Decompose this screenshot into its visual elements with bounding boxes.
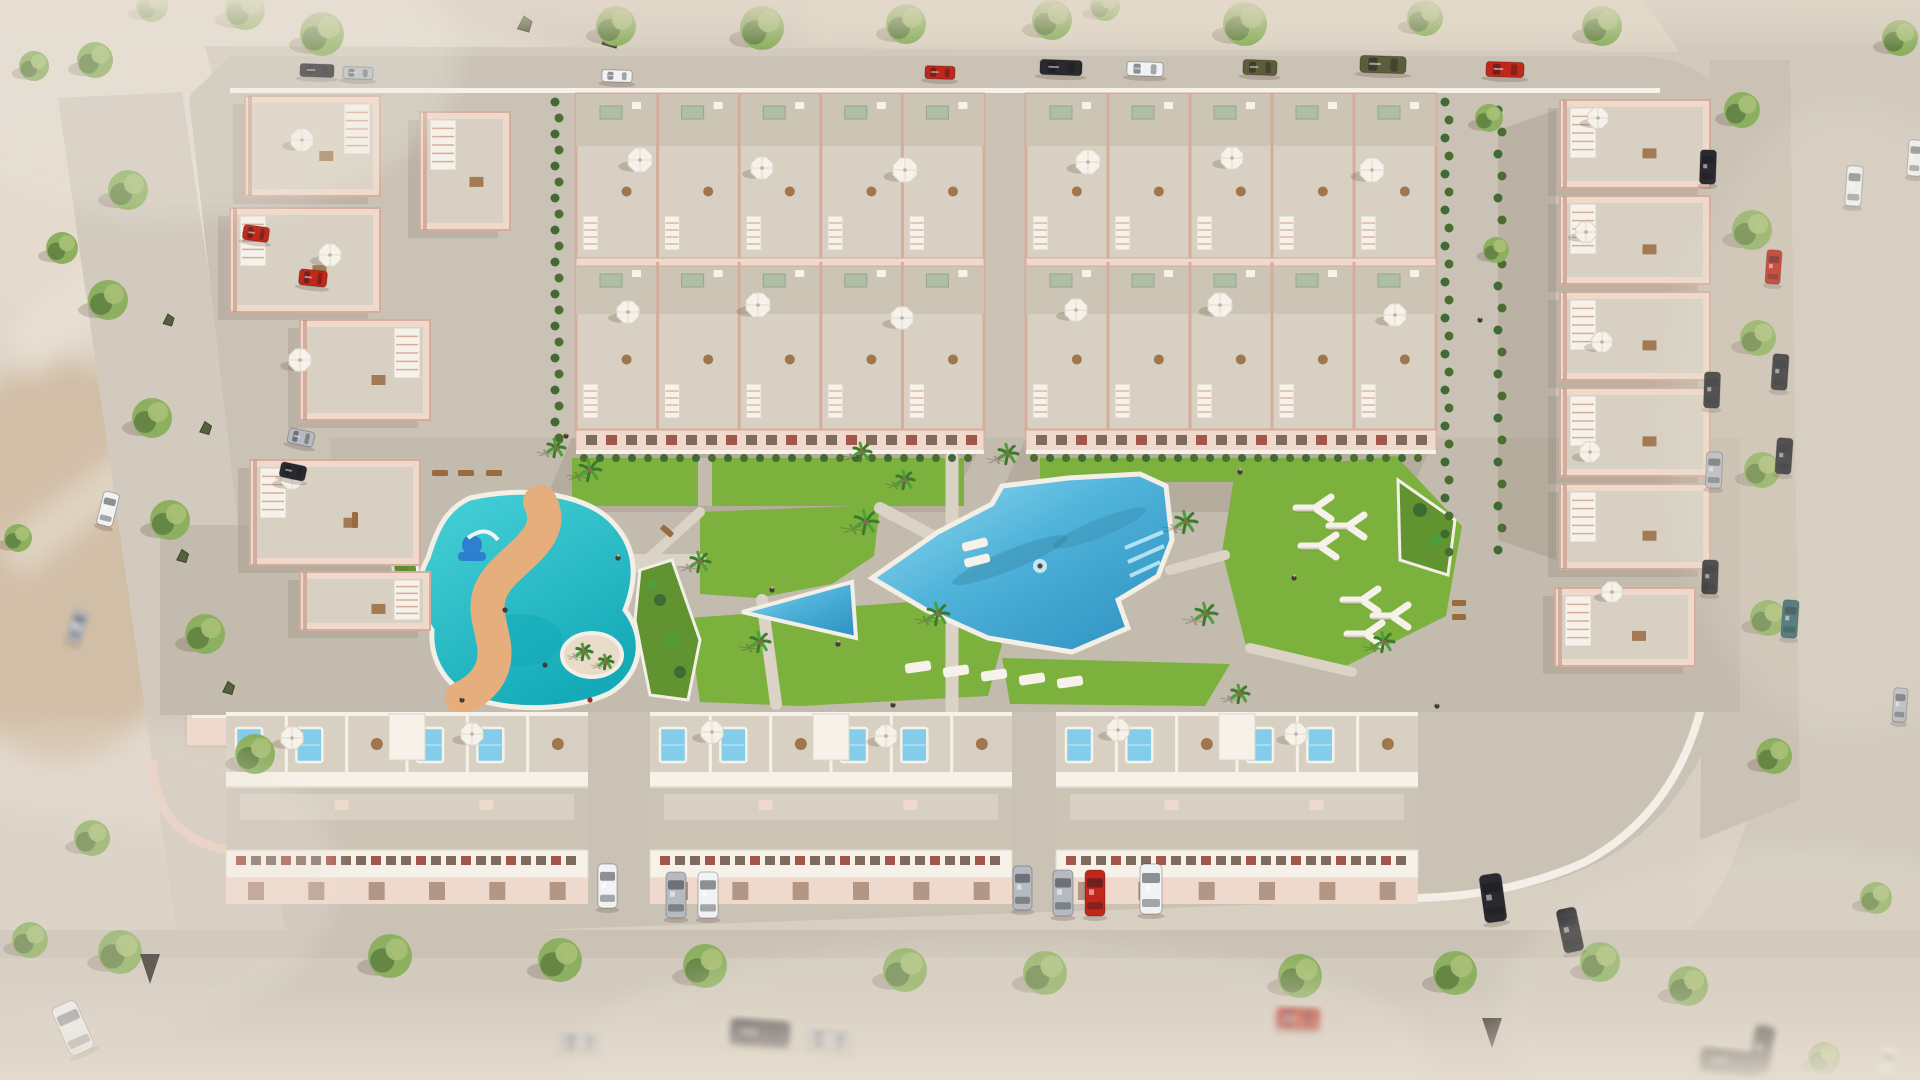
window (1196, 435, 1207, 445)
hedge-bush (660, 454, 668, 462)
solar-panel (1378, 274, 1400, 287)
hedge-bush (708, 454, 716, 462)
stair-railing (1279, 216, 1294, 250)
window (706, 435, 717, 445)
terrace-table (1643, 148, 1657, 158)
bottom-townhouse-rows (226, 712, 1418, 904)
hedge-bush (836, 454, 844, 462)
window (966, 435, 977, 445)
solar-panel (600, 274, 622, 287)
window (356, 856, 366, 865)
hedge-bush (724, 454, 732, 462)
terrace-table (470, 177, 484, 187)
hedge-bush (1350, 454, 1358, 462)
window (735, 856, 745, 865)
window (1296, 435, 1307, 445)
hedge-bush (1414, 454, 1422, 462)
terrace-table (1643, 531, 1657, 541)
development-scene (0, 0, 1920, 1080)
solar-panel (1214, 106, 1236, 119)
window (1056, 435, 1067, 445)
window (945, 856, 955, 865)
villa (238, 460, 420, 573)
solar-panel (1378, 106, 1400, 119)
window (780, 856, 790, 865)
window (926, 435, 937, 445)
terrace-table (1072, 354, 1082, 364)
window (766, 435, 777, 445)
window (586, 435, 597, 445)
window (491, 856, 501, 865)
aerial-render-stage (0, 0, 1920, 1080)
villa (1543, 588, 1695, 674)
solar-panel (763, 274, 785, 287)
stair-tower (389, 714, 425, 760)
hedge-bush (756, 454, 764, 462)
car (1238, 59, 1281, 80)
window (1236, 435, 1247, 445)
hedge-bush (916, 454, 924, 462)
solar-panel (682, 106, 704, 119)
window (1351, 856, 1361, 865)
window (1396, 856, 1406, 865)
solar-panel (1050, 274, 1072, 287)
stair-railing (746, 384, 761, 418)
stair-railing (1197, 216, 1212, 250)
window (341, 856, 351, 865)
stair-railing (1033, 384, 1048, 418)
window (1261, 856, 1271, 865)
window (855, 856, 865, 865)
solar-panel (763, 106, 785, 119)
hedge-bush (692, 454, 700, 462)
hedge-bush (964, 454, 972, 462)
terrace-table (703, 186, 713, 196)
window (746, 435, 757, 445)
window (1231, 856, 1241, 865)
window (846, 435, 857, 445)
bather (587, 697, 592, 702)
car (1137, 864, 1164, 919)
street-facade (576, 430, 984, 452)
stair-railing (1361, 216, 1376, 250)
window (1416, 435, 1427, 445)
window (401, 856, 411, 865)
villa (1548, 196, 1710, 292)
solar-panel (1296, 106, 1318, 119)
stair-railing (1197, 384, 1212, 418)
bench (486, 470, 502, 476)
swimmer (1037, 563, 1042, 568)
door (974, 882, 990, 900)
window (906, 435, 917, 445)
window (446, 856, 456, 865)
window (626, 435, 637, 445)
hedge-bush (1302, 454, 1310, 462)
stair-tower (1219, 714, 1255, 760)
window (476, 856, 486, 865)
hedge-bush (1238, 454, 1246, 462)
stair-railing (1033, 216, 1048, 250)
hedge-bush (1174, 454, 1182, 462)
door (1380, 882, 1396, 900)
window (690, 856, 700, 865)
window (825, 856, 835, 865)
stair-railing (746, 216, 761, 250)
solar-panel (1214, 274, 1236, 287)
hedge-bush (628, 454, 636, 462)
door (1199, 882, 1215, 900)
terrace-table (866, 354, 876, 364)
terrace-table (1318, 186, 1328, 196)
window (1336, 856, 1346, 865)
door (853, 882, 869, 900)
window (1076, 435, 1087, 445)
building-shadow (1498, 110, 1556, 560)
terrace-table (948, 186, 958, 196)
terrace-table (1154, 186, 1164, 196)
door (550, 882, 566, 900)
hedge-bush (676, 454, 684, 462)
window (810, 856, 820, 865)
solar-panel (682, 274, 704, 287)
door (429, 882, 445, 900)
window (551, 856, 561, 865)
window (806, 435, 817, 445)
window (705, 856, 715, 865)
window (1136, 435, 1147, 445)
hedge-bush (1110, 454, 1118, 462)
window (416, 856, 426, 865)
window (786, 435, 797, 445)
inner-lane (984, 94, 1026, 454)
hedge-bush (740, 454, 748, 462)
window (1096, 856, 1106, 865)
car (664, 872, 689, 923)
bottom-row (1056, 712, 1418, 904)
terrace-table (1154, 354, 1164, 364)
hedge-bush (1158, 454, 1166, 462)
window (566, 856, 576, 865)
window (1171, 856, 1181, 865)
bather (502, 607, 507, 612)
hedge-bush (1142, 454, 1150, 462)
hedge-bush (612, 454, 620, 462)
hedge-bush (1222, 454, 1230, 462)
terrace-table (1201, 738, 1213, 750)
terrace-table (372, 375, 386, 385)
window (1356, 435, 1367, 445)
door (1319, 882, 1335, 900)
terrace-table (622, 354, 632, 364)
stair-railing (909, 384, 924, 418)
car (596, 864, 620, 913)
car (1083, 870, 1108, 921)
solar-panel (1050, 106, 1072, 119)
window (900, 856, 910, 865)
door (1259, 882, 1275, 900)
hedge-bush (868, 454, 876, 462)
solar-panel (600, 106, 622, 119)
window (765, 856, 775, 865)
door (489, 882, 505, 900)
kids-lagoon-pool (420, 492, 639, 707)
hedge-bush (900, 454, 908, 462)
villa (1548, 100, 1710, 196)
window (506, 856, 516, 865)
car (598, 69, 636, 87)
window (1216, 856, 1226, 865)
villa (288, 320, 430, 428)
solar-panel (926, 274, 948, 287)
hedge-bush (1382, 454, 1390, 462)
hedge-bush (1126, 454, 1134, 462)
window (1366, 856, 1376, 865)
terrace-table (976, 738, 988, 750)
solar-panel (845, 106, 867, 119)
window (1116, 435, 1127, 445)
stair-railing (828, 384, 843, 418)
window (646, 435, 657, 445)
window (885, 856, 895, 865)
window (1376, 435, 1387, 445)
stair-railing (1279, 384, 1294, 418)
window (1156, 435, 1167, 445)
villa (218, 208, 380, 320)
solar-panel (845, 274, 867, 287)
terrace-table (552, 738, 564, 750)
stair-railing (1115, 384, 1130, 418)
window (930, 856, 940, 865)
stair-railing (665, 216, 680, 250)
window (606, 435, 617, 445)
stair-railing (583, 384, 598, 418)
terrace-table (1382, 738, 1394, 750)
terrace-table (1643, 340, 1657, 350)
window (1186, 856, 1196, 865)
window (1381, 856, 1391, 865)
hedge-bush (932, 454, 940, 462)
car (1051, 870, 1076, 921)
window (686, 435, 697, 445)
window (1276, 856, 1286, 865)
window (975, 856, 985, 865)
hedge-bush (1366, 454, 1374, 462)
window (720, 856, 730, 865)
window (1336, 435, 1347, 445)
window (386, 856, 396, 865)
hedge-bush (1398, 454, 1406, 462)
window (826, 435, 837, 445)
terrace-table (866, 186, 876, 196)
hedge-bush (1030, 454, 1038, 462)
car (696, 872, 721, 923)
terrace-table (1400, 354, 1410, 364)
window (1096, 435, 1107, 445)
car (1354, 55, 1412, 79)
window (915, 856, 925, 865)
window (1316, 435, 1327, 445)
window (1066, 856, 1076, 865)
terrace-table (372, 604, 386, 614)
window (675, 856, 685, 865)
door (732, 882, 748, 900)
stair-railing (909, 216, 924, 250)
terrace-table (785, 354, 795, 364)
bather (542, 662, 547, 667)
door (793, 882, 809, 900)
car (1481, 61, 1529, 83)
hedge-bush (788, 454, 796, 462)
hedge-bush (804, 454, 812, 462)
window (1126, 856, 1136, 865)
window (990, 856, 1000, 865)
hedge-bush (772, 454, 780, 462)
window (946, 435, 957, 445)
hedge-bush (1094, 454, 1102, 462)
bench (458, 470, 474, 476)
hedge-bush (1286, 454, 1294, 462)
terrace-table (1643, 244, 1657, 254)
hedge-bush (1318, 454, 1326, 462)
terrace-table (1072, 186, 1082, 196)
hedge-bush (1206, 454, 1214, 462)
window (726, 435, 737, 445)
car (1035, 59, 1088, 81)
stair-railing (1115, 216, 1130, 250)
window (521, 856, 531, 865)
window (795, 856, 805, 865)
window (1216, 435, 1227, 445)
window (1396, 435, 1407, 445)
stair-railing (583, 216, 598, 250)
solar-panel (1132, 274, 1154, 287)
hedge-bush (820, 454, 828, 462)
window (960, 856, 970, 865)
window (840, 856, 850, 865)
window (750, 856, 760, 865)
window (461, 856, 471, 865)
street-facade (1026, 430, 1436, 452)
window (1176, 435, 1187, 445)
terrace-table (703, 354, 713, 364)
hedge-bush (1078, 454, 1086, 462)
lagoon-island (562, 633, 622, 677)
terrace-table (795, 738, 807, 750)
stair-tower (813, 714, 849, 760)
window (1081, 856, 1091, 865)
terrace-table (1400, 186, 1410, 196)
window (1321, 856, 1331, 865)
terrace-table (1236, 354, 1246, 364)
window (870, 856, 880, 865)
terrace-table (371, 738, 383, 750)
terrace-table (785, 186, 795, 196)
hedge-bush (1334, 454, 1342, 462)
terrace-table (1643, 436, 1657, 446)
hedge-bush (644, 454, 652, 462)
window (536, 856, 546, 865)
hedge-bush (948, 454, 956, 462)
terrace-table (1236, 186, 1246, 196)
terrace-table (622, 186, 632, 196)
solar-panel (1296, 274, 1318, 287)
window (666, 435, 677, 445)
hedge-bush (1062, 454, 1070, 462)
window (1201, 856, 1211, 865)
car (1122, 61, 1167, 82)
hedge-bush (884, 454, 892, 462)
terrace-table (1632, 631, 1646, 641)
bench (1452, 614, 1466, 620)
window (1111, 856, 1121, 865)
door (369, 882, 385, 900)
bench (352, 512, 358, 528)
solar-panel (926, 106, 948, 119)
bench (1452, 600, 1466, 606)
stair-railing (1361, 384, 1376, 418)
door (913, 882, 929, 900)
window (1306, 856, 1316, 865)
window (1036, 435, 1047, 445)
solar-panel (1132, 106, 1154, 119)
window (1246, 856, 1256, 865)
hedge-bush (1190, 454, 1198, 462)
car (1011, 866, 1035, 915)
lawn-path-gap (698, 458, 712, 506)
terrace-table (948, 354, 958, 364)
hedge-bush (1270, 454, 1278, 462)
car (921, 65, 959, 84)
window (1276, 435, 1287, 445)
villa (288, 572, 430, 638)
hedge-bush (1046, 454, 1054, 462)
terrace-table (1318, 354, 1328, 364)
hedge-bush (1254, 454, 1262, 462)
window (886, 435, 897, 445)
window (431, 856, 441, 865)
window (371, 856, 381, 865)
stair-railing (828, 216, 843, 250)
window (660, 856, 670, 865)
window (1291, 856, 1301, 865)
stair-railing (665, 384, 680, 418)
window (1256, 435, 1267, 445)
bench (432, 470, 448, 476)
